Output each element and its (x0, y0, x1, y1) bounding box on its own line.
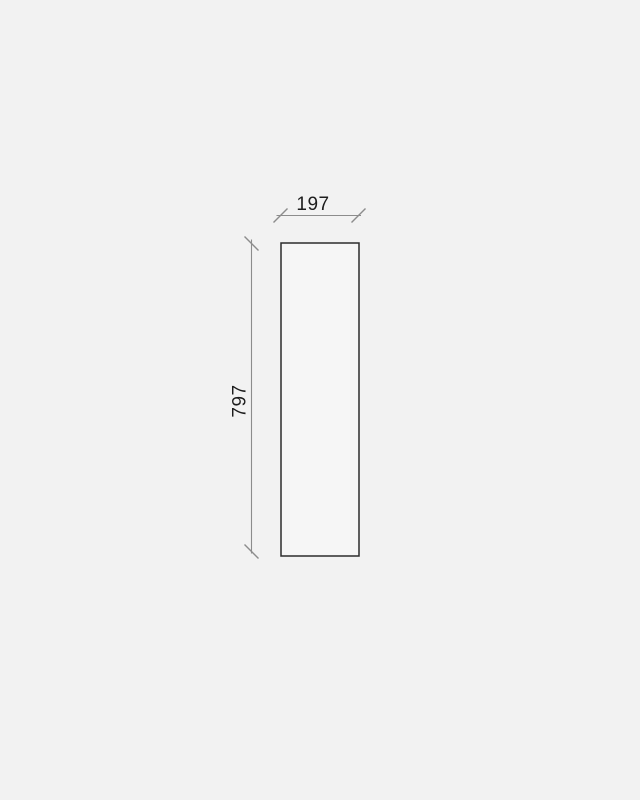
height-dimension-label: 797 (230, 384, 251, 417)
technical-drawing-canvas: 197 797 (0, 0, 640, 800)
dimensioned-drawing: 197 797 (0, 0, 640, 800)
panel-outline (281, 243, 359, 556)
height-dimension: 797 (230, 237, 259, 559)
width-dimension: 197 (274, 194, 366, 223)
width-dimension-label: 197 (296, 194, 329, 215)
